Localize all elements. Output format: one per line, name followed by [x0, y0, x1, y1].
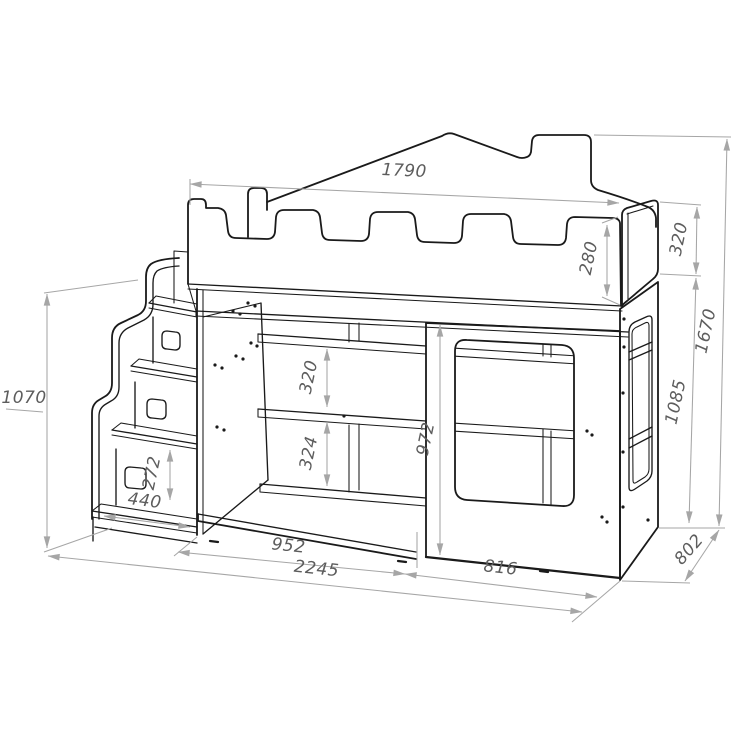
dim-label-802: 802: [671, 530, 708, 569]
side-panel-screw-dots: [621, 317, 649, 521]
dim-side-rail-height: 320: [660, 202, 701, 276]
dim-label-972: 972: [413, 420, 440, 457]
roof-and-chimney-outline: [267, 133, 656, 227]
crenellation-outline: [188, 199, 621, 306]
right-side-rail: [622, 201, 658, 307]
step2-handle-cutout: [147, 399, 166, 419]
furniture-outline: [92, 133, 658, 580]
through-window-details: [452, 341, 578, 505]
dim-label-952: 952: [271, 534, 307, 557]
dim-side-panel-height: 1085: [662, 278, 696, 523]
step3-handle-cutout: [162, 331, 180, 350]
front-window-panel: [426, 323, 620, 578]
inner-shelf-mid-edges: [452, 423, 578, 439]
dim-label-816: 816: [483, 556, 519, 579]
dim-window-section-width: 816: [405, 556, 620, 622]
side-rail-outline: [622, 201, 658, 307]
back-panel-house: [248, 133, 656, 237]
castle-merlon-tab: [248, 188, 267, 237]
step1-tread-edges: [112, 423, 197, 449]
side-rail-inner-edge: [627, 206, 653, 299]
dim-label-1085: 1085: [662, 378, 691, 426]
inner-shelf-top-edges: [452, 348, 578, 364]
dimensions: 1790 280 320 1670 1085 802: [1, 135, 731, 622]
divider-upper: [349, 323, 359, 342]
divider-lower: [349, 424, 359, 492]
front-guard-rail: [188, 199, 622, 311]
step3-tread-edges: [149, 296, 197, 317]
dim-stairs-height: 1070: [1, 280, 138, 552]
left-panel-shelf-pin-dots: [213, 301, 345, 431]
dim-label-320-shelf: 320: [296, 358, 323, 395]
dim-shelf-gap-lower: 324: [296, 422, 327, 486]
left-panel-back-edge: [261, 303, 268, 480]
left-panel-bottom-edge: [203, 480, 268, 534]
front-window-opening: [455, 340, 574, 506]
dim-label-1790: 1790: [381, 160, 427, 182]
plinth-top-edge: [198, 514, 416, 552]
dim-label-272: 272: [139, 454, 166, 491]
inner-divider-bottom: [543, 429, 551, 505]
open-shelf-cabinet: [197, 289, 548, 572]
dim-label-2245: 2245: [293, 557, 340, 582]
bottom-board-lower-edge: [260, 484, 426, 506]
bottom-board-front-edge: [260, 484, 426, 498]
stair-railing-inner: [99, 266, 179, 519]
front-panel-screw-dots: [585, 429, 608, 523]
dim-label-320-side: 320: [666, 220, 693, 257]
plinth-bottom-edge: [198, 514, 416, 559]
dim-label-324: 324: [296, 434, 323, 471]
dim-shelf-gap-upper: 320: [296, 349, 327, 407]
front-panel-bottom-edge: [426, 557, 620, 578]
loft-bed-technical-drawing: 1790 280 320 1670 1085 802: [0, 0, 750, 750]
right-side-panel: [620, 282, 658, 580]
technical-drawing-canvas: 1790 280 320 1670 1085 802: [0, 0, 750, 750]
dim-label-1670: 1670: [692, 307, 721, 355]
step2-tread-edges: [131, 359, 197, 382]
dim-label-440: 440: [127, 489, 163, 513]
dim-label-280: 280: [576, 239, 603, 276]
dim-guard-rail-height: 280: [576, 217, 620, 305]
rail-bottom-edge: [188, 284, 622, 306]
dim-label-1070: 1070: [1, 388, 46, 408]
rail-bottom-inner-edge: [188, 289, 622, 311]
step3-tread-front: [149, 303, 197, 312]
dim-bed-top-length: 1790: [190, 160, 619, 205]
